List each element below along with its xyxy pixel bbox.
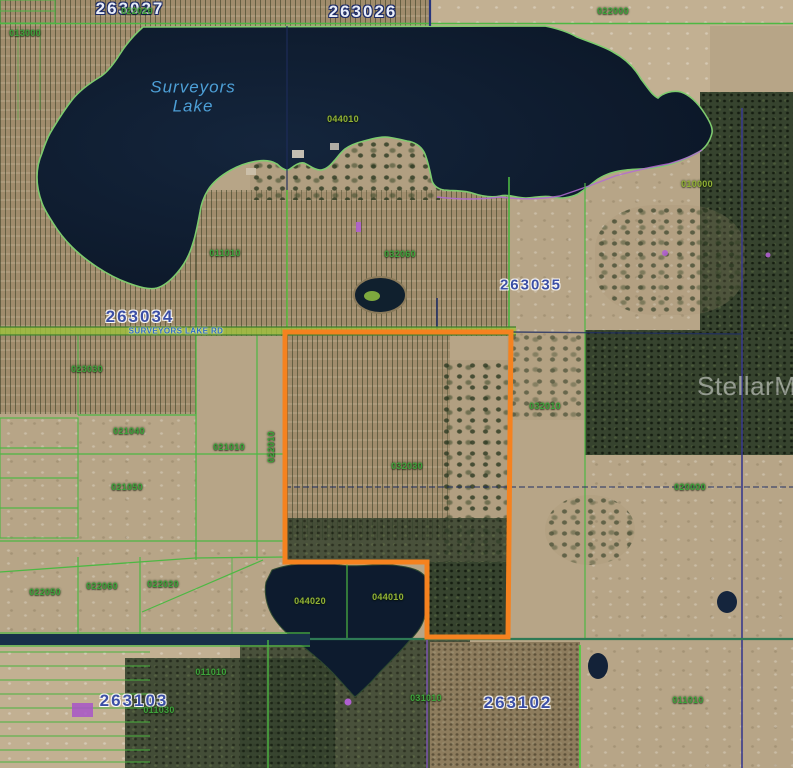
parcel-label-011030: 011030	[143, 705, 174, 715]
parcel-label-022020-top: 022020	[121, 6, 153, 16]
parcel-label-020000: 020000	[674, 482, 706, 492]
parcel-label-022010: 022010	[266, 431, 276, 463]
municipal-label-263034: 263034	[106, 307, 175, 327]
parcel-label-032060: 032060	[384, 249, 416, 259]
surveyors-lake-shape	[37, 26, 712, 289]
parcel-label-044020: 044020	[294, 596, 326, 606]
municipal-label-263035: 263035	[500, 277, 562, 294]
parcel-label-044010-south: 044010	[372, 592, 404, 602]
parcel-label-023030: 023030	[71, 364, 103, 374]
map-overlay-svg	[0, 0, 793, 768]
municipal-label-263026: 263026	[329, 2, 398, 22]
parcel-label-031010: 031010	[410, 693, 442, 703]
gis-parcel-map-viewport[interactable]: 263027 263026 263034 263035 263103 26310…	[0, 0, 793, 768]
parcel-label-021040: 021040	[113, 426, 145, 436]
parcel-label-022060: 022060	[86, 581, 118, 591]
lake-name-label: Surveyors Lake	[150, 78, 236, 115]
parcel-label-011010-southwest: 011010	[195, 667, 226, 677]
parcel-label-044010-north: 044010	[327, 114, 359, 124]
road-label-surveyors-lake-rd: SURVEYORS LAKE RD	[129, 327, 224, 336]
parcel-label-011010-southeast: 011010	[672, 695, 703, 705]
parcel-label-032010: 032010	[529, 401, 561, 411]
parcel-label-021050: 021050	[111, 482, 143, 492]
parcel-label-011010-center: 011010	[209, 248, 240, 258]
parcel-label-022020-south: 022020	[147, 579, 179, 589]
parcel-label-022050: 022050	[29, 587, 61, 597]
municipal-label-263102: 263102	[484, 693, 553, 713]
parcel-label-021010: 021010	[213, 442, 245, 452]
lake-name-line2: Lake	[150, 97, 236, 116]
bottom-road	[0, 634, 310, 645]
parcel-label-010000: 010000	[681, 179, 713, 189]
parcel-label-022000: 022000	[597, 6, 629, 16]
parcel-label-013000: 013000	[9, 28, 41, 38]
stellar-mls-watermark: StellarMLS	[697, 371, 793, 402]
lake-name-line1: Surveyors	[150, 78, 236, 97]
parcel-label-032030: 032030	[391, 461, 423, 471]
